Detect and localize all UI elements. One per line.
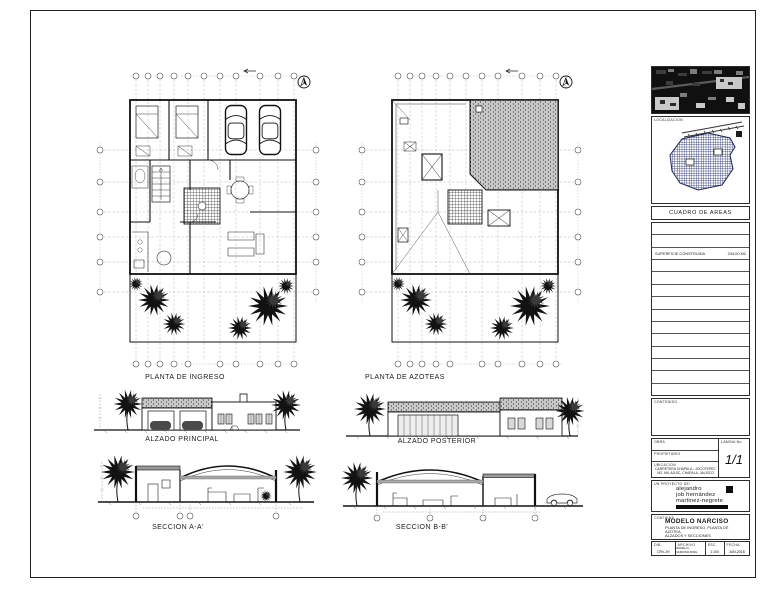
contiene-block: CONTIENE MODELO NARCISO PLANTA DE INGRES… (651, 514, 750, 540)
localizacion-label: LOCALIZACION (654, 118, 683, 122)
grid-bubble (157, 73, 163, 79)
grid-bubble (359, 259, 365, 265)
grid-bubble (185, 73, 191, 79)
chimney (240, 394, 247, 402)
grid-bubble (133, 361, 139, 367)
meta-label: ARCHIVO (678, 543, 696, 547)
meta-cell-escala: ESC. 1:100 (706, 542, 725, 555)
table-row (652, 260, 749, 272)
cuadro-de-areas-header: CUADRO DE AREAS (651, 206, 750, 220)
grid-bubble (201, 73, 207, 79)
logo-underline (676, 505, 728, 509)
tree-symbol (510, 286, 550, 325)
grid-bubble (185, 361, 191, 367)
grid-bubble (407, 361, 413, 367)
propietario-label: PROPIETARIO (654, 452, 681, 456)
grid-bubble (463, 73, 469, 79)
lamina-cell: LAMINA No. 1/1 (719, 439, 749, 477)
furniture (208, 488, 264, 502)
table-row (652, 272, 749, 284)
grid-bubble (97, 259, 103, 265)
grid-bubble (359, 147, 365, 153)
contenido-box: CONTENIDO (651, 398, 750, 436)
label-seccion-bb: SECCION B-B' (367, 524, 477, 531)
grid-bubble (433, 361, 439, 367)
table-row (652, 347, 749, 359)
door (148, 484, 158, 502)
grid-bubble (575, 234, 581, 240)
table-row (652, 223, 749, 235)
grid-bubble (97, 179, 103, 185)
grid-bubble (313, 147, 319, 153)
car-side-symbol (547, 494, 577, 506)
tile-roof-band (500, 398, 562, 410)
furniture (393, 493, 517, 506)
grid-bubble (257, 361, 263, 367)
table-row (652, 334, 749, 346)
grid-bubble (427, 515, 433, 521)
label-planta-azoteas: PLANTA DE AZOTEAS (350, 374, 460, 381)
tree-symbol (248, 286, 288, 325)
grid-bubble (537, 361, 543, 367)
meta-strip: DIB. CRV-JH ARCHIVO MODELO-NARCISO.DWG E… (651, 541, 750, 556)
tree-symbol (114, 390, 143, 418)
grid-bubble (359, 179, 365, 185)
grid-bubble (575, 209, 581, 215)
grid-bubble (575, 147, 581, 153)
grid-bubble (537, 73, 543, 79)
patio-opening-hatch (448, 190, 482, 224)
grid-bubble (171, 361, 177, 367)
table-row: SUPERFICIE CONSTRUIDA 234.00 M2 (652, 248, 749, 260)
grid-bubble (217, 361, 223, 367)
grid-bubble (145, 73, 151, 79)
planta-azoteas-drawing (352, 62, 587, 377)
contiene-label: CONTIENE (654, 516, 674, 520)
grid-bubble (97, 289, 103, 295)
grid-bubble (187, 513, 193, 519)
tile-roof-band (388, 402, 500, 412)
alzado-posterior-drawing (340, 392, 585, 440)
ubicacion-line2: NO. MIL AJIJIC, CHAPALA, JALISCO (654, 471, 717, 475)
stair-symbol (152, 166, 170, 202)
seccion-bb-drawing (335, 458, 595, 528)
bed-symbol (176, 106, 198, 138)
grid-bubble (359, 209, 365, 215)
grid-bubble (233, 73, 239, 79)
roof-slab (136, 466, 180, 470)
grid-bubble (479, 361, 485, 367)
grid-bubble (177, 513, 183, 519)
grid-bubble (291, 73, 297, 79)
meta-value: 1:100 (710, 550, 719, 554)
grid-bubble (359, 289, 365, 295)
north-arrow-icon (560, 76, 572, 88)
grid-bubble (275, 361, 281, 367)
tree-symbol (283, 455, 317, 488)
label-alzado-posterior: ALZADO POSTERIOR (382, 438, 492, 445)
car-silhouette (150, 421, 171, 430)
tree-symbol (540, 278, 556, 294)
grid-bubble (313, 234, 319, 240)
grid-bubble (407, 73, 413, 79)
car-symbol (226, 106, 247, 155)
grid-bubble (97, 234, 103, 240)
superficie-label: SUPERFICIE CONSTRUIDA (655, 251, 705, 256)
meta-label: FECHA (727, 543, 740, 547)
table-row (652, 310, 749, 322)
meta-value: JUN-2018 (729, 550, 745, 554)
grid-bubble (313, 179, 319, 185)
superficie-value: 234.00 M2 (728, 251, 746, 256)
meta-label: ESC. (708, 543, 717, 547)
meta-cell-fecha: FECHA JUN-2018 (725, 542, 749, 555)
car-symbol (260, 106, 281, 155)
tree-symbol (260, 490, 272, 502)
grid-bubble (575, 259, 581, 265)
entry-arrow-icon (506, 69, 518, 73)
grid-bubble (419, 73, 425, 79)
architect-logo-block: UN PROYECTO DE: alejandro job hernández … (651, 480, 750, 512)
north-arrow-icon (298, 76, 310, 88)
info-block: OBRA PROPIETARIO UBICACION CARRETERA CHA… (651, 438, 750, 478)
grid-bubble (145, 361, 151, 367)
grid-bubble (480, 515, 486, 521)
label-planta-ingreso: PLANTA DE INGRESO (130, 374, 240, 381)
grid-bubble (479, 73, 485, 79)
tree-symbol (490, 316, 514, 340)
table-row (652, 359, 749, 371)
tile-roof-band (142, 398, 212, 408)
grid-bubble (291, 361, 297, 367)
areas-table: SUPERFICIE CONSTRUIDA 234.00 M2 (651, 222, 750, 396)
grid-bubble (313, 259, 319, 265)
proyecto-label: UN PROYECTO DE: (654, 482, 690, 486)
grid-bubble (257, 73, 263, 79)
grid-bubble (575, 289, 581, 295)
grid-bubble (532, 515, 538, 521)
grid-bubble (447, 73, 453, 79)
logo-line-3: martinez-negrete (676, 498, 749, 504)
obra-label: OBRA (654, 440, 665, 444)
drawing-sheet: PLANTA DE INGRESO PLANTA DE AZOTEAS ALZA… (0, 0, 776, 600)
meta-cell-dibujo: DIB. CRV-JH (652, 542, 676, 555)
grid-bubble (275, 73, 281, 79)
grid-bubble (313, 209, 319, 215)
grid-bubble (395, 361, 401, 367)
grid-bubble (553, 73, 559, 79)
lamina-label: LAMINA No. (721, 440, 743, 444)
table-row (652, 285, 749, 297)
table-row (652, 297, 749, 309)
tree-symbol (101, 455, 135, 488)
grid-bubble (97, 209, 103, 215)
table-row (652, 384, 749, 395)
table-row (652, 371, 749, 383)
meta-cell-archivo: ARCHIVO MODELO-NARCISO.DWG (676, 542, 706, 555)
grid-bubble (495, 73, 501, 79)
grid-bubble (495, 361, 501, 367)
entry-arrow-icon (244, 69, 256, 73)
alzado-principal-drawing (90, 388, 305, 436)
table-row (652, 322, 749, 334)
grid-bubble (133, 73, 139, 79)
bed-symbol (136, 106, 158, 138)
tile-roof-hatch (470, 100, 558, 190)
site-polygon (670, 133, 735, 190)
grid-bubble (553, 361, 559, 367)
grid-bubble (575, 179, 581, 185)
grid-bubble (447, 361, 453, 367)
grid-bubble (433, 73, 439, 79)
label-alzado-principal: ALZADO PRINCIPAL (127, 436, 237, 443)
car-silhouette (182, 421, 203, 430)
cuadro-header-text: CUADRO DE AREAS (669, 210, 732, 216)
tree-symbol (341, 462, 373, 493)
model-subtitle-2: ALZADOS Y SECCIONES (665, 534, 745, 538)
planta-ingreso-drawing (90, 62, 325, 377)
grid-bubble (395, 73, 401, 79)
location-map: LOCALIZACION (651, 116, 750, 204)
grid-bubble (359, 234, 365, 240)
grid-bubble (157, 361, 163, 367)
label-seccion-aa: SECCION A-A' (123, 524, 233, 531)
grid-bubble (519, 73, 525, 79)
table-row (652, 235, 749, 247)
grid-bubble (419, 361, 425, 367)
contenido-label: CONTENIDO (654, 400, 677, 404)
tree-symbol (138, 284, 170, 315)
meta-value: CRV-JH (657, 550, 670, 554)
grid-bubble (273, 513, 279, 519)
meta-label: DIB. (654, 543, 662, 547)
tree-symbol (354, 393, 386, 424)
tree-symbol (400, 284, 432, 315)
grid-bubble (133, 513, 139, 519)
seccion-aa-drawing (88, 452, 328, 526)
title-block: LOCALIZACION CUADRO DE AREAS SUPERFICIE … (651, 66, 750, 556)
tree-symbol (278, 278, 294, 294)
grid-bubble (233, 361, 239, 367)
aerial-photo (651, 66, 750, 114)
grid-bubble (217, 73, 223, 79)
logo-mark (726, 486, 733, 493)
grid-bubble (97, 147, 103, 153)
roof-slab (483, 474, 535, 478)
tree-symbol (228, 316, 252, 340)
grid-bubble (374, 515, 380, 521)
grid-bubble (519, 361, 525, 367)
grid-bubble (171, 73, 177, 79)
grid-bubble (313, 289, 319, 295)
model-title: MODELO NARCISO (665, 518, 749, 525)
lamina-number: 1/1 (725, 452, 743, 467)
